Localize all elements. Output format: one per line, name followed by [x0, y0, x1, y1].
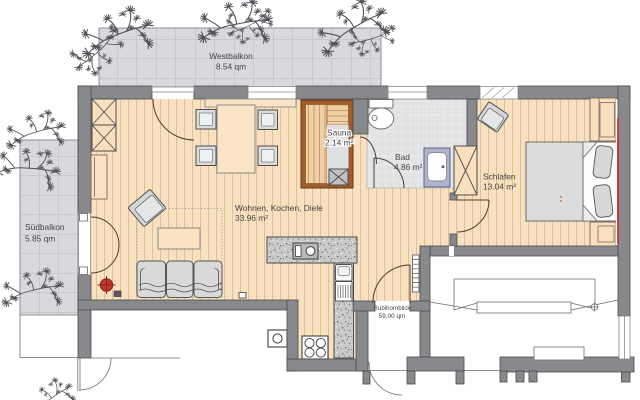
svg-text:13.04 m²: 13.04 m²: [483, 182, 516, 192]
svg-text:8.54 qm: 8.54 qm: [216, 61, 246, 71]
svg-text:Schlafen: Schlafen: [483, 172, 516, 182]
svg-text:33.96 m²: 33.96 m²: [235, 213, 268, 223]
svg-text:Westbalkon: Westbalkon: [209, 51, 253, 61]
svg-text:Sauna: Sauna: [327, 128, 352, 138]
svg-text:59,00 qm: 59,00 qm: [379, 313, 406, 320]
svg-text:4.86 m²: 4.86 m²: [394, 162, 423, 172]
svg-text:Südbalkon: Südbalkon: [25, 222, 65, 232]
svg-text:Bad: Bad: [395, 152, 410, 162]
svg-text:Rubihornblick: Rubihornblick: [374, 305, 412, 312]
svg-text:5.85 qm: 5.85 qm: [25, 234, 55, 244]
svg-text:2.14 m²: 2.14 m²: [325, 138, 354, 148]
svg-text:Wohnen, Kochen, Diele: Wohnen, Kochen, Diele: [235, 203, 323, 213]
